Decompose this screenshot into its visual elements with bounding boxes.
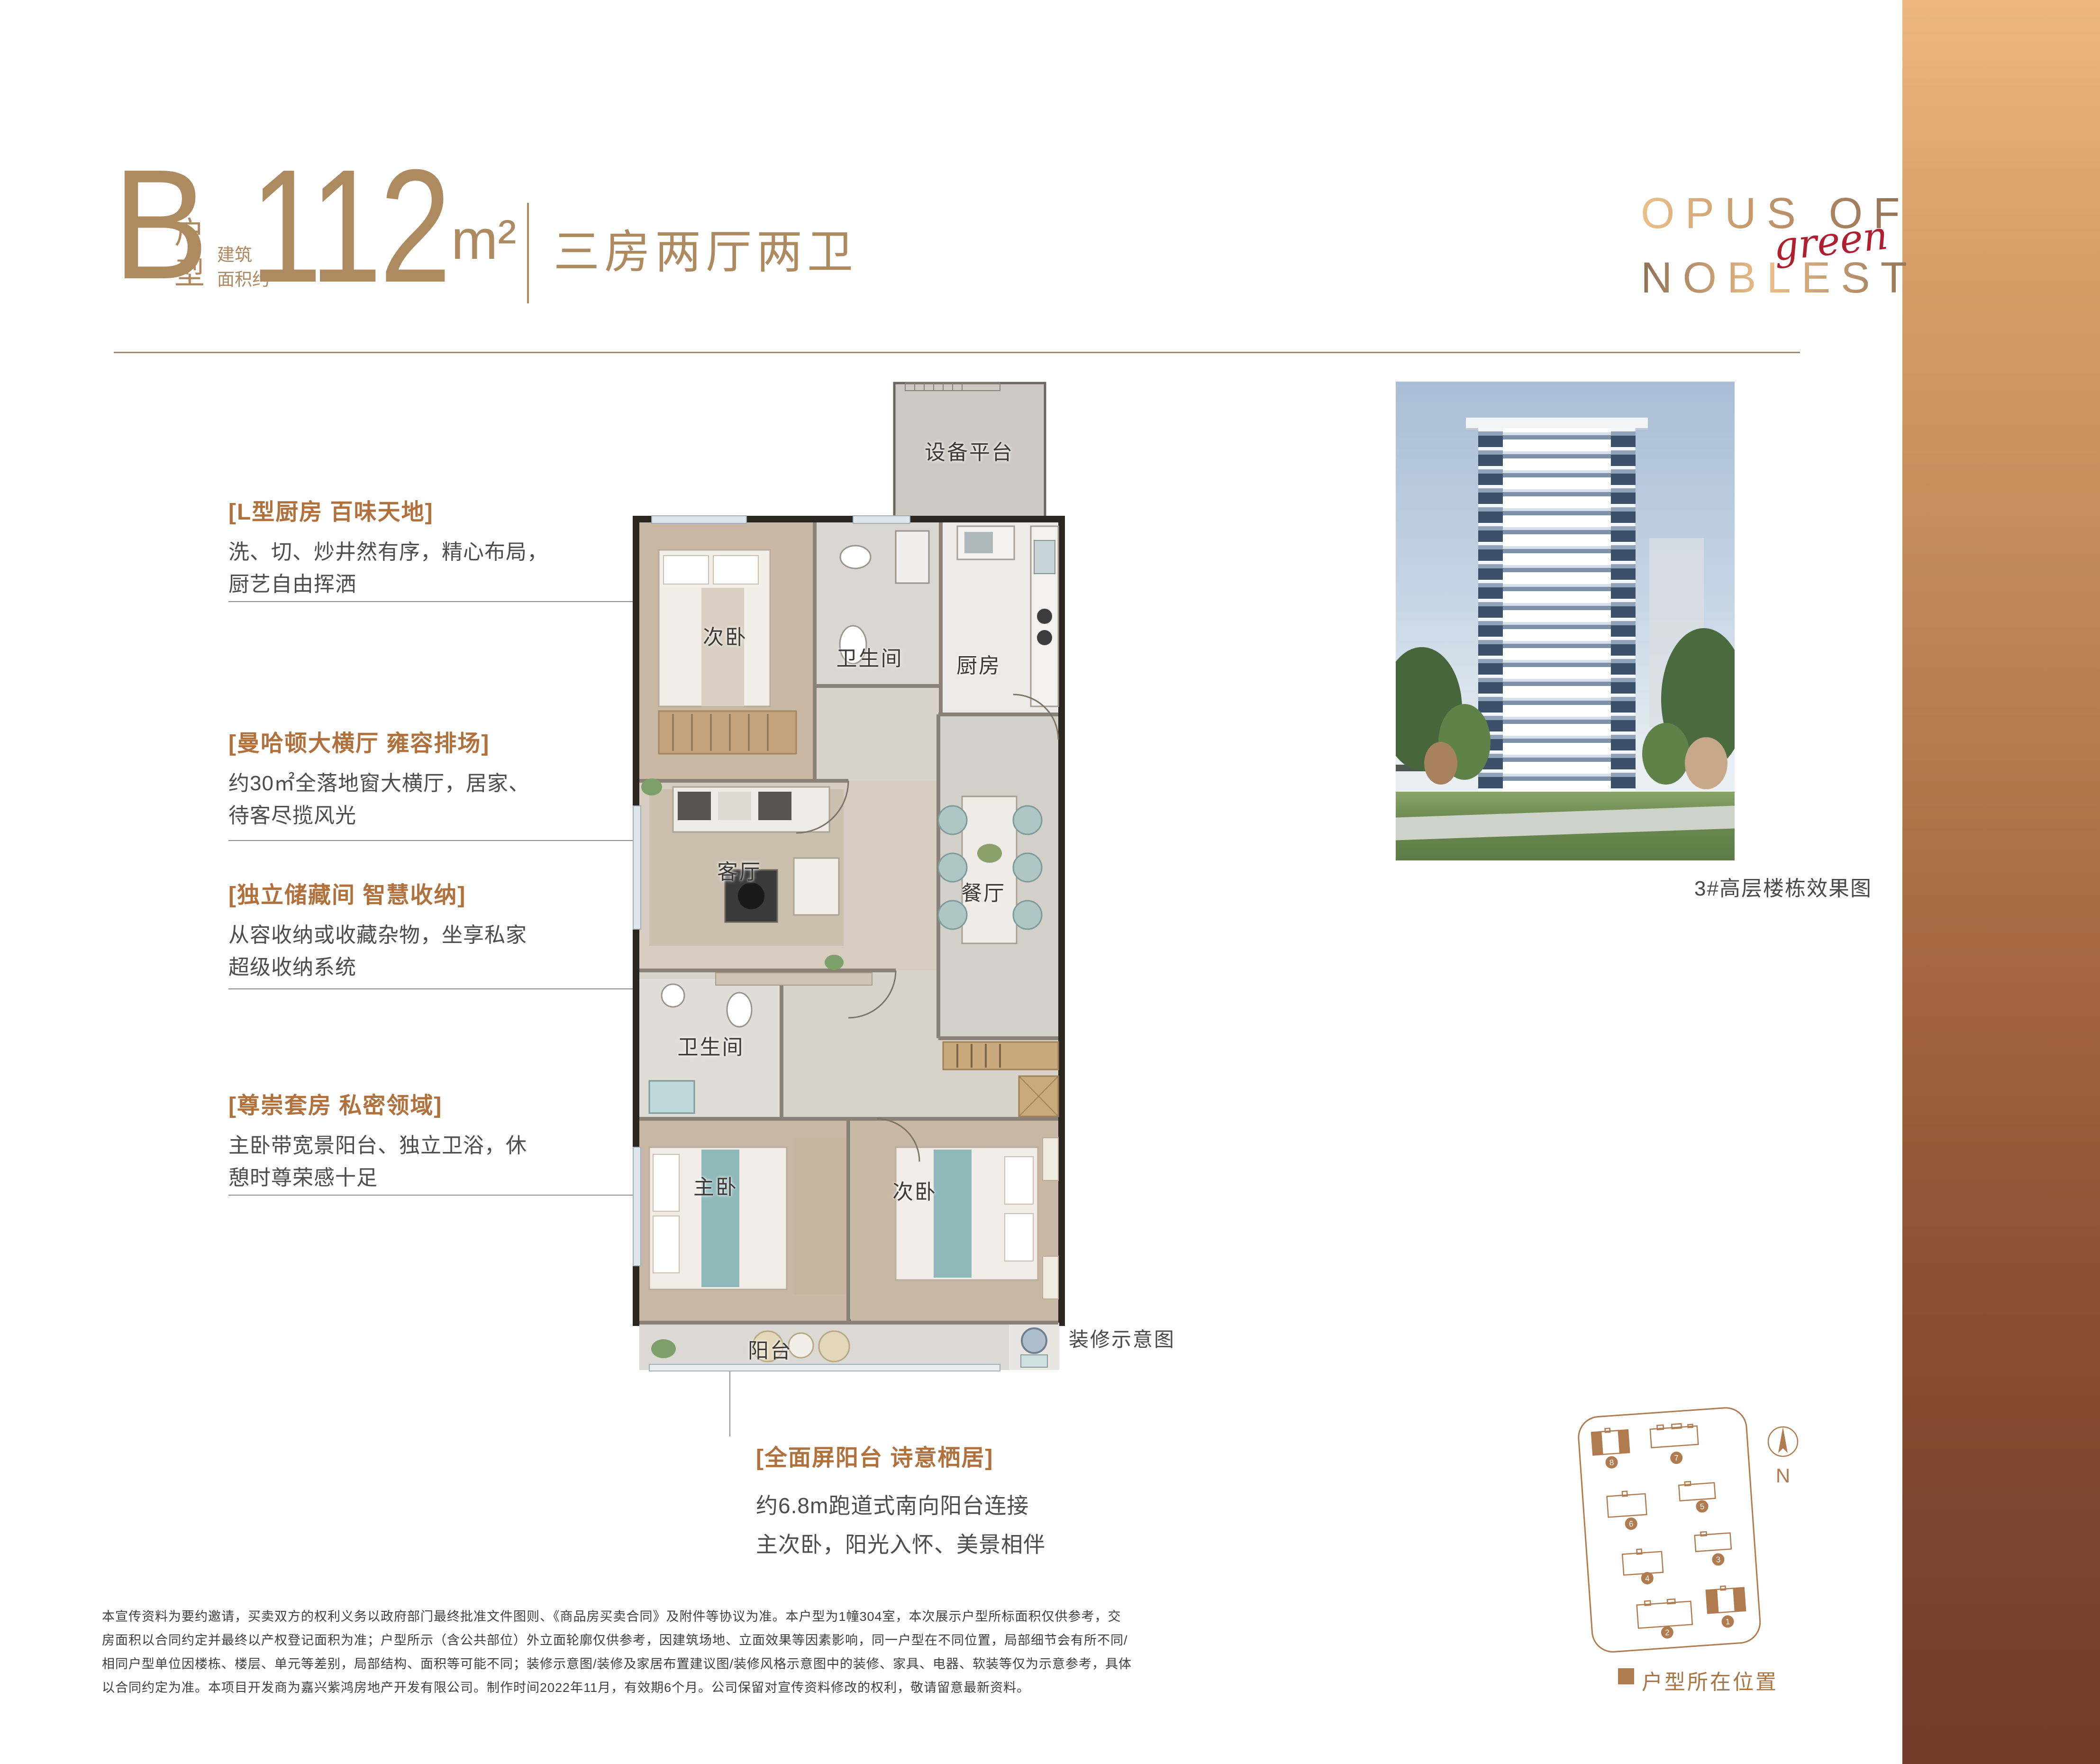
feature-3-line1: 从容收纳或收藏杂物，坐享私家: [228, 918, 527, 948]
furniture-bedroom-bottom: [896, 1138, 1058, 1299]
feature-2-line1: 约30㎡全落地窗大横厅，居家、: [228, 766, 530, 796]
floorplan-caption: 装修示意图: [1069, 1324, 1175, 1353]
siteplan-diagram: 8 7 6 5 4 3 2 1: [1569, 1392, 1777, 1671]
room-label-balcony: 阳台: [748, 1334, 792, 1364]
room-label-living: 客厅: [717, 855, 762, 885]
compass-n-label: N: [1776, 1464, 1790, 1487]
room-label-kitchen: 厨房: [956, 649, 1001, 679]
disclaimer-line4: 以合同约定为准。本项目开发商为嘉兴紫鸿房地产开发有限公司。制作时间2022年11…: [102, 1676, 1590, 1700]
area-value: 112: [250, 148, 449, 304]
feature-1-line2: 厨艺自由挥洒: [228, 567, 356, 597]
tree-left-red: [1424, 742, 1457, 785]
room-label-bath2: 卫生间: [678, 1030, 745, 1060]
legend-swatch: [1618, 1668, 1634, 1684]
feature-4-heading: [尊崇套房 私密领域]: [228, 1087, 442, 1120]
header-divider: [527, 203, 529, 303]
room-label-equipment: 设备平台: [925, 435, 1014, 466]
header-rule: [114, 352, 1800, 353]
callout-line-living: [228, 840, 662, 841]
siteplan-buildings: [1591, 1420, 1746, 1631]
tower-core: [1503, 428, 1611, 807]
svg-text:4: 4: [1645, 1574, 1650, 1583]
area-unit: m²: [451, 208, 517, 272]
room-label-bedroom-bottom: 次卧: [892, 1175, 937, 1205]
unit-layout: 三房两厅两卫: [554, 214, 858, 281]
svg-text:8: 8: [1609, 1458, 1614, 1467]
feature-1-line1: 洗、切、炒井然有序，精心布局，: [228, 535, 548, 565]
room-label-bedroom-top: 次卧: [703, 620, 747, 650]
tree-right-small: [1642, 723, 1690, 785]
feature-4-line1: 主卧带宽景阳台、独立卫浴，休: [228, 1128, 527, 1159]
feature-balcony-heading: [全面屏阳台 诗意栖居]: [756, 1439, 993, 1472]
tree-right-tan: [1685, 737, 1727, 789]
furniture-dining: [938, 796, 1042, 943]
building-render-photo: [1396, 382, 1735, 860]
feature-3-heading: [独立储藏间 智慧收纳]: [228, 876, 466, 909]
svg-text:3: 3: [1716, 1555, 1721, 1564]
feature-3-line2: 超级收纳系统: [228, 950, 356, 980]
feature-2-line2: 待客尽揽风光: [228, 798, 356, 829]
svg-text:2: 2: [1665, 1628, 1670, 1637]
tower-roof: [1466, 418, 1648, 428]
feature-1-heading: [L型厨房 百味天地]: [228, 493, 434, 526]
feature-balcony-line2: 主次卧，阳光入怀、美景相伴: [756, 1527, 1045, 1559]
room-label-master: 主卧: [693, 1170, 738, 1200]
room-label-bath1: 卫生间: [836, 641, 903, 672]
svg-text:1: 1: [1725, 1617, 1730, 1627]
svg-text:7: 7: [1674, 1453, 1679, 1463]
unit-type-suffix: 户型: [174, 212, 209, 294]
flyer-page: B 户型 建筑 面积约 112 m² 三房两厅两卫 OPUS OF green …: [0, 0, 2100, 1764]
feature-balcony-line1: 约6.8m跑道式南向阳台连接: [756, 1489, 1029, 1520]
disclaimer-line3: 相同户型单位因楼栋、楼层、单元等差别，局部结构、面积等可能不同；装修示意图/装修…: [102, 1652, 1590, 1676]
feature-4-line2: 憩时尊荣感十足: [228, 1161, 378, 1191]
side-gradient-bar: [1902, 0, 2100, 1764]
disclaimer: 本宣传资料为要约邀请，买卖双方的权利义务以政府部门最终批准文件图则、《商品房买卖…: [102, 1605, 1590, 1700]
siteplan-boundary: [1577, 1407, 1762, 1654]
render-caption: 3#高层楼栋效果图: [1694, 871, 1872, 902]
disclaimer-line1: 本宣传资料为要约邀请，买卖双方的权利义务以政府部门最终批准文件图则、《商品房买卖…: [102, 1605, 1590, 1628]
tower-right-wing: [1611, 428, 1636, 807]
room-label-dining: 餐厅: [961, 876, 1006, 906]
legend-label: 户型所在位置: [1642, 1665, 1778, 1695]
svg-text:5: 5: [1700, 1502, 1705, 1511]
furniture-master: [649, 1138, 846, 1294]
disclaimer-line2: 房面积以合同约定并最终以产权登记面积为准；户型所示（含公共部位）外立面轮廓仅供参…: [102, 1628, 1590, 1652]
svg-text:6: 6: [1628, 1519, 1634, 1529]
compass-icon: N: [1766, 1425, 1800, 1489]
feature-2-heading: [曼哈顿大横厅 雍容排场]: [228, 724, 490, 758]
